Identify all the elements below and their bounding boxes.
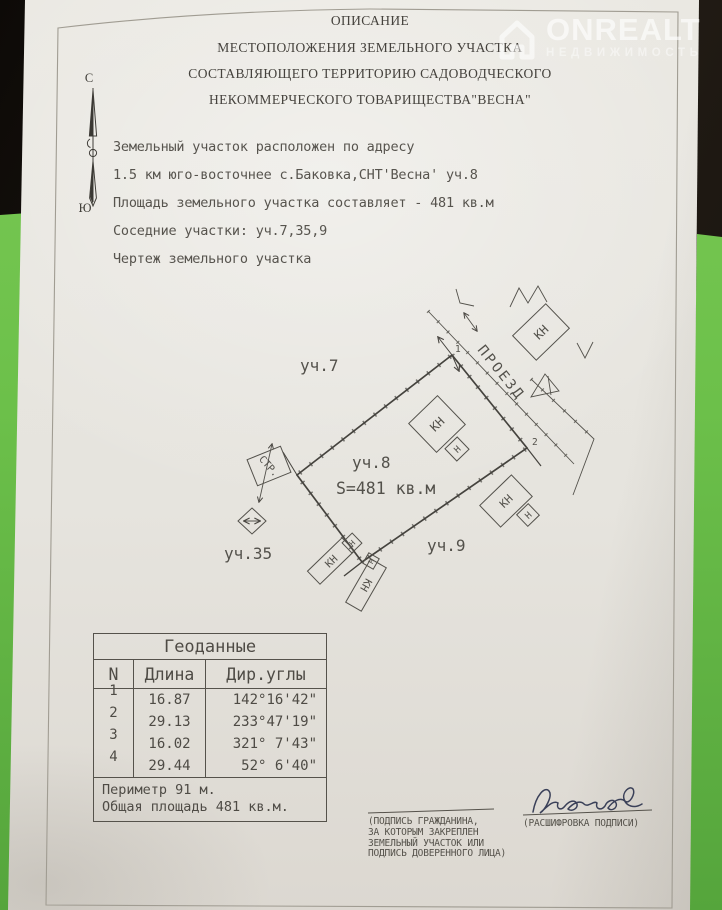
structure-str-box: СТР. (247, 446, 291, 485)
svg-text:КН: КН (323, 553, 340, 570)
building-kn-bottom-left: КН (307, 538, 354, 584)
table-row: 4 29.44 52° 6'40" (94, 755, 327, 778)
svg-text:КН: КН (497, 492, 516, 511)
row-angle: 142°16'42" (206, 689, 327, 712)
svg-text:СТР.: СТР. (256, 454, 280, 479)
well-diamond-symbol (238, 508, 266, 534)
svg-text:КН: КН (427, 414, 447, 434)
parcel9-label: уч.9 (427, 536, 466, 555)
row-angle: 233°47'19" (206, 711, 327, 733)
row-number: 4 (109, 749, 117, 765)
row-length: 16.02 (134, 733, 206, 755)
annex-n-parcel9: Н (517, 504, 540, 527)
document-paper: ОПИСАНИЕ МЕСТОПОЛОЖЕНИЯ ЗЕМЕЛЬНОГО УЧАСТ… (0, 0, 722, 910)
compass-north-label: С (85, 71, 93, 85)
signature-handwriting (533, 788, 642, 813)
gate-triangle-mark (531, 374, 559, 397)
svg-text:КН: КН (531, 322, 551, 342)
col-header-length: Длина (134, 660, 206, 689)
row-length: 16.87 (134, 689, 206, 712)
zigzag-mark-m (510, 286, 547, 307)
road-and-fences (259, 286, 594, 502)
building-kn-parcel9: КН (480, 475, 532, 527)
parcel8-area-label: S=481 кв.м (336, 479, 435, 498)
photographed-document-scene: ОПИСАНИЕ МЕСТОПОЛОЖЕНИЯ ЗЕМЕЛЬНОГО УЧАСТ… (0, 0, 722, 910)
svg-text:Н: Н (524, 511, 535, 522)
road-label: ПРОЕЗД (474, 342, 528, 403)
svg-text:Н: Н (453, 445, 464, 456)
row-angle: 321° 7'43" (206, 733, 327, 755)
row-length: 29.13 (134, 711, 206, 733)
parcel35-label: уч.35 (224, 544, 272, 563)
building-kn-in-parcel8: КН (409, 396, 466, 453)
signature-area (368, 788, 652, 815)
table-row: 3 16.02 321° 7'43" (94, 733, 327, 755)
geodata-table: Геоданные N Длина Дир.углы 1 16.87 142°1… (93, 633, 327, 822)
svg-text:Н: Н (347, 538, 357, 548)
fence-corner-mark (456, 289, 474, 306)
road-width-dimension-arrow (464, 313, 477, 331)
row-angle: 52° 6'40" (206, 755, 327, 778)
compass-south-label: Ю (79, 201, 92, 215)
perimeter-text: Периметр 91 м. (102, 782, 326, 799)
table-row: 2 29.13 233°47'19" (94, 711, 327, 733)
point2-label: 2 (532, 437, 538, 448)
total-area-text: Общая площадь 481 кв.м. (102, 799, 326, 816)
parcel8-label: уч.8 (352, 453, 391, 472)
zigzag-mark-v (577, 342, 593, 358)
building-kn-top-right: КН (513, 304, 570, 360)
row-number: 1 (109, 683, 117, 699)
col-header-angle: Дир.углы (206, 660, 327, 689)
row-number: 2 (109, 705, 117, 721)
signature-right-caption: (РАСШИФРОВКА ПОДПИСИ) (523, 819, 639, 830)
building-kn-bottom-right: КН (346, 559, 387, 611)
compass-north-arrow: С Ю (79, 71, 97, 215)
signature-left-caption: (ПОДПИСЬ ГРАЖДАНИНА, ЗА КОТОРЫМ ЗАКРЕПЛЕ… (368, 817, 506, 860)
geodata-table-title: Геоданные (94, 634, 327, 660)
row-number: 3 (109, 727, 117, 743)
row-length: 29.44 (134, 755, 206, 778)
point1-label: 1 (455, 344, 461, 355)
table-row: 1 16.87 142°16'42" (94, 689, 327, 712)
parcel7-label: уч.7 (300, 356, 339, 375)
